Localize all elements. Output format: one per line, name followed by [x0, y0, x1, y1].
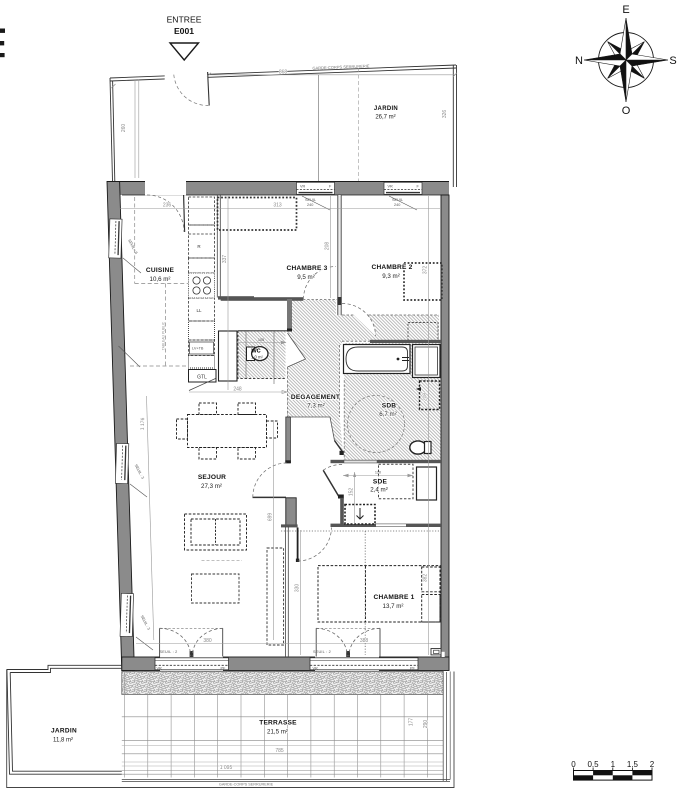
svg-text:PF: PF: [221, 666, 227, 670]
svg-text:S: S: [669, 55, 676, 67]
svg-text:868: 868: [279, 70, 288, 76]
svg-text:236: 236: [163, 203, 172, 209]
svg-text:CHAMBRE 2: CHAMBRE 2: [372, 264, 413, 271]
svg-text:JARDIN: JARDIN: [51, 728, 77, 735]
svg-text:6,7 m²: 6,7 m²: [379, 411, 397, 418]
svg-text:N: N: [575, 55, 583, 67]
svg-text:JARDIN: JARDIN: [374, 106, 398, 112]
svg-text:699: 699: [268, 513, 274, 522]
svg-text:105: 105: [258, 338, 264, 342]
svg-text:E001: E001: [174, 26, 194, 36]
svg-text:GTL: GTL: [197, 375, 207, 381]
svg-text:26,7 m²: 26,7 m²: [375, 115, 395, 121]
svg-text:CUISINE: CUISINE: [146, 267, 175, 274]
svg-text:LV+TB: LV+TB: [192, 347, 204, 351]
svg-text:372: 372: [423, 266, 429, 275]
svg-text:330: 330: [295, 584, 301, 593]
svg-text:SEJOUR: SEJOUR: [198, 474, 226, 481]
svg-text:27,3 m²: 27,3 m²: [201, 483, 222, 490]
svg-text:240: 240: [307, 203, 313, 207]
svg-text:SDB: SDB: [382, 403, 397, 410]
svg-text:O: O: [622, 105, 631, 117]
svg-text:9,5 m²: 9,5 m²: [297, 274, 315, 281]
svg-text:240: 240: [394, 203, 400, 207]
svg-text:ENTREE: ENTREE: [167, 15, 202, 25]
svg-text:LL: LL: [196, 308, 202, 313]
svg-text:208: 208: [325, 242, 331, 251]
svg-text:VR: VR: [313, 666, 319, 670]
svg-text:DEGAGEMENT: DEGAGEMENT: [291, 394, 340, 401]
svg-text:E: E: [622, 4, 629, 16]
svg-text:9,3 m²: 9,3 m²: [382, 273, 400, 280]
svg-text:10,6 m²: 10,6 m²: [150, 276, 171, 283]
svg-text:313: 313: [273, 203, 282, 209]
svg-text:326: 326: [442, 110, 448, 119]
svg-text:1 095: 1 095: [220, 765, 233, 771]
svg-text:290: 290: [423, 720, 429, 729]
svg-text:260: 260: [121, 124, 127, 133]
svg-text:SEUIL : 2: SEUIL : 2: [160, 650, 178, 654]
svg-text:11,8 m²: 11,8 m²: [53, 738, 73, 744]
svg-text:VR: VR: [157, 666, 163, 670]
svg-text:152: 152: [349, 488, 355, 497]
svg-text:CHAMBRE 1: CHAMBRE 1: [374, 594, 415, 601]
svg-text:337: 337: [222, 255, 228, 264]
svg-text:CHAMBRE 3: CHAMBRE 3: [287, 265, 328, 272]
svg-text:380: 380: [203, 638, 212, 644]
svg-text:785: 785: [275, 748, 284, 754]
svg-text:SEUIL: SEUIL: [392, 198, 403, 202]
svg-text:1,0 m²: 1,0 m²: [251, 355, 263, 360]
svg-text:13,7 m²: 13,7 m²: [383, 603, 404, 610]
svg-text:PF: PF: [410, 666, 416, 670]
svg-text:208: 208: [423, 393, 429, 402]
svg-text:382: 382: [423, 574, 429, 583]
svg-text:VR: VR: [300, 185, 306, 189]
svg-text:SEUIL : 2: SEUIL : 2: [313, 650, 331, 654]
svg-text:7,3 m²: 7,3 m²: [307, 403, 325, 410]
svg-text:120: 120: [375, 471, 381, 475]
svg-text:TERRASSE: TERRASSE: [259, 720, 297, 727]
svg-text:1 176: 1 176: [140, 417, 146, 430]
svg-text:177: 177: [409, 718, 415, 727]
svg-text:21,5 m²: 21,5 m²: [267, 729, 288, 736]
svg-text:2,4 m²: 2,4 m²: [370, 487, 388, 494]
svg-text:388: 388: [360, 638, 369, 644]
svg-text:VR: VR: [388, 185, 394, 189]
svg-text:TABLEAU PUBLIC: TABLEAU PUBLIC: [162, 321, 166, 350]
svg-text:SEUIL: SEUIL: [305, 198, 316, 202]
svg-text:SDE: SDE: [373, 479, 388, 486]
svg-text:GARDE-CORPS SERRURERIE: GARDE-CORPS SERRURERIE: [219, 783, 274, 787]
svg-text:248: 248: [233, 387, 242, 393]
